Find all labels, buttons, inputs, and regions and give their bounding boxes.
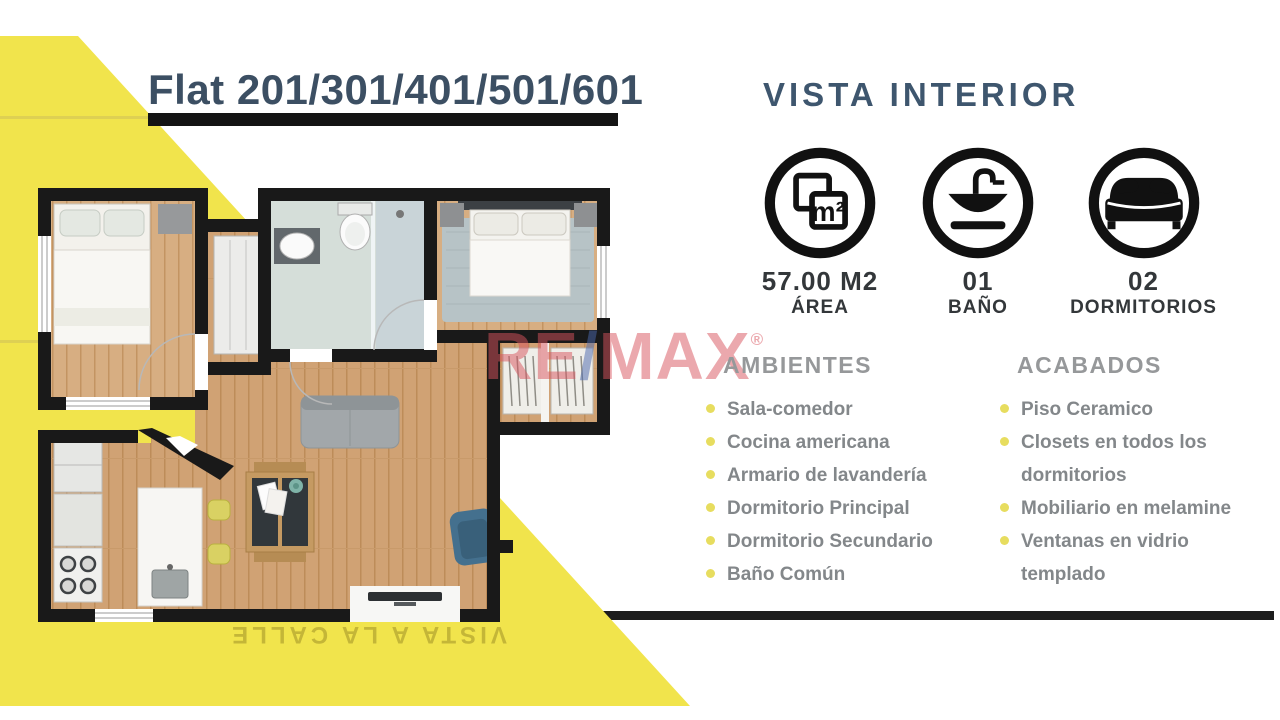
list-item: Mobiliario en melamine	[1000, 492, 1278, 525]
shower	[376, 201, 424, 349]
bullet-icon	[1000, 503, 1009, 512]
magazine	[265, 489, 287, 516]
counter	[54, 494, 102, 546]
closet-nook	[214, 236, 264, 354]
stat-bedrooms: 02 DORMITORIOS	[1046, 146, 1241, 319]
wardrobe	[214, 236, 264, 354]
bullet-icon	[706, 470, 715, 479]
title-underline	[148, 113, 618, 126]
tv	[368, 592, 442, 601]
stove	[54, 548, 102, 602]
duvet	[54, 250, 150, 344]
bath-sink-icon	[921, 146, 1035, 260]
sink	[280, 233, 314, 259]
registered-mark: ®	[751, 330, 765, 349]
nightstand	[158, 204, 192, 234]
bedrooms-value: 02	[1046, 266, 1241, 297]
nightstand	[440, 203, 464, 227]
pillow	[522, 213, 566, 235]
bedrooms-label: DORMITORIOS	[1046, 297, 1241, 319]
stool	[208, 500, 230, 520]
area-m2-icon: m²	[763, 146, 877, 260]
area-label: ÁREA	[745, 297, 895, 319]
ambientes-heading: AMBIENTES	[723, 352, 984, 379]
island-sink	[152, 570, 188, 598]
list-item: Cocina americana	[706, 426, 984, 459]
acabados-section: ACABADOS Piso Ceramico Closets en todos …	[1000, 352, 1278, 591]
bullet-icon	[706, 437, 715, 446]
list-item: Armario de lavandería	[706, 459, 984, 492]
list-item: Dormitorio Principal	[706, 492, 984, 525]
pillow	[60, 210, 100, 236]
floorplan-drawing	[38, 188, 622, 622]
nightstand	[574, 203, 598, 227]
shower-head-icon	[396, 210, 404, 218]
bullet-icon	[1000, 437, 1009, 446]
list-item: Dormitorio Secundario	[706, 525, 984, 558]
list-item: Piso Ceramico	[1000, 393, 1278, 426]
pillow	[104, 210, 144, 236]
list-item: Baño Común	[706, 558, 984, 591]
ambientes-section: AMBIENTES Sala-comedor Cocina americana …	[706, 352, 984, 591]
watermark-re: RE	[484, 319, 579, 394]
bullet-icon	[706, 536, 715, 545]
page-title: Flat 201/301/401/501/601	[148, 66, 643, 114]
flyer-page: VISTA A LA CALLE	[0, 0, 1280, 720]
bullet-icon	[1000, 536, 1009, 545]
bath-value: 01	[903, 266, 1053, 297]
bullet-icon	[706, 503, 715, 512]
bed-icon	[1087, 146, 1201, 260]
ambientes-list: Sala-comedor Cocina americana Armario de…	[706, 393, 984, 591]
watermark-slash: /	[579, 319, 599, 394]
list-item: Ventanas en vidrio templado	[1000, 525, 1278, 591]
acabados-heading: ACABADOS	[1017, 352, 1278, 379]
list-item: Closets en todos los dormitorios	[1000, 426, 1278, 492]
street-view-label: VISTA A LA CALLE	[185, 620, 550, 648]
shower-glass	[371, 201, 375, 349]
bullet-icon	[706, 569, 715, 578]
stool	[208, 544, 230, 564]
svg-text:m²: m²	[811, 196, 844, 227]
bullet-icon	[706, 404, 715, 413]
duvet	[470, 240, 570, 296]
toilet-tank	[338, 203, 372, 215]
area-value: 57.00 M2	[745, 266, 895, 297]
stat-bath: 01 BAÑO	[903, 146, 1053, 319]
headboard	[458, 201, 582, 210]
bath-label: BAÑO	[903, 297, 1053, 319]
pillow	[474, 213, 518, 235]
list-item: Sala-comedor	[706, 393, 984, 426]
acabados-list: Piso Ceramico Closets en todos los dormi…	[1000, 393, 1278, 591]
bullet-icon	[1000, 404, 1009, 413]
main-bedroom	[440, 201, 598, 322]
stat-area: m² 57.00 M2 ÁREA	[745, 146, 895, 319]
vista-interior-heading: VISTA INTERIOR	[763, 76, 1079, 114]
